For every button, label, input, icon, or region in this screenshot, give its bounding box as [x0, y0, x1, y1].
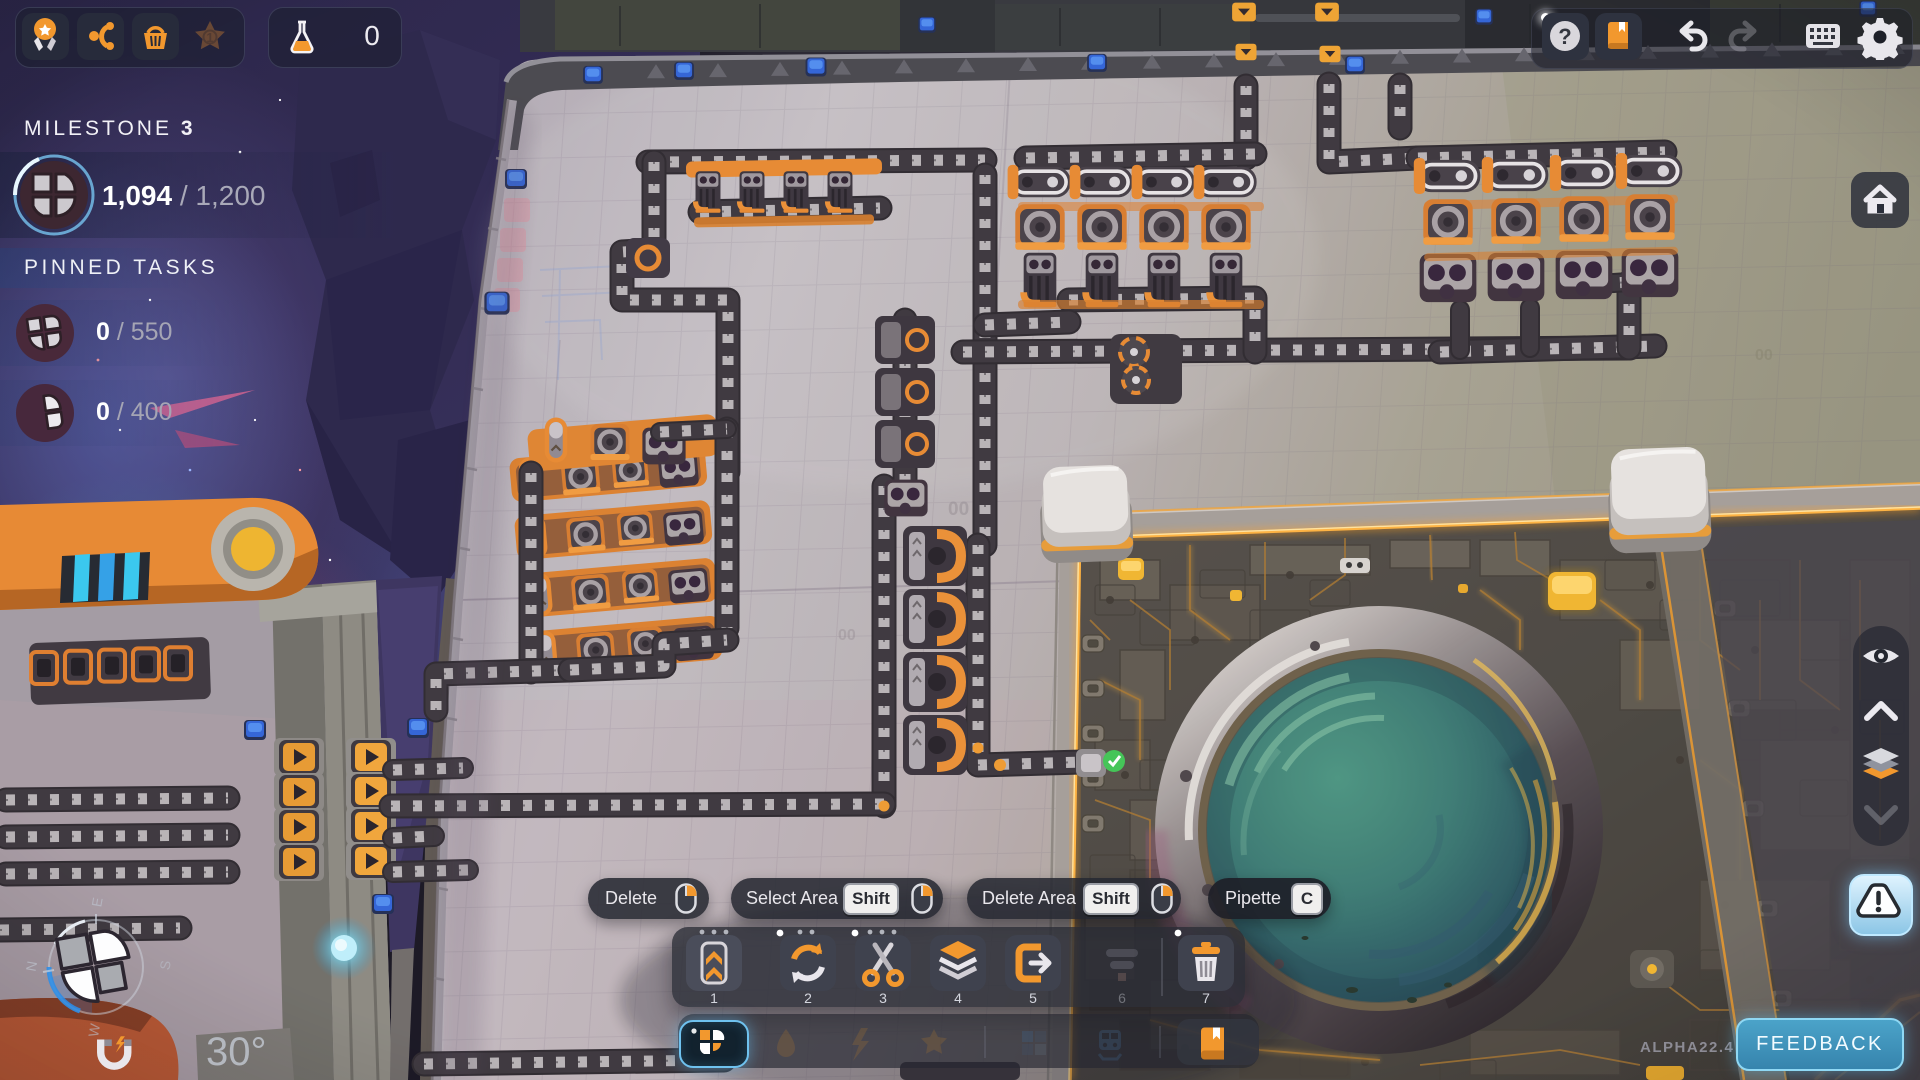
svg-text:1: 1	[206, 30, 213, 45]
svg-text:N: N	[23, 960, 41, 973]
svg-text:S: S	[156, 959, 173, 971]
svg-text:E: E	[88, 896, 105, 908]
svg-text:?: ?	[1558, 24, 1571, 49]
